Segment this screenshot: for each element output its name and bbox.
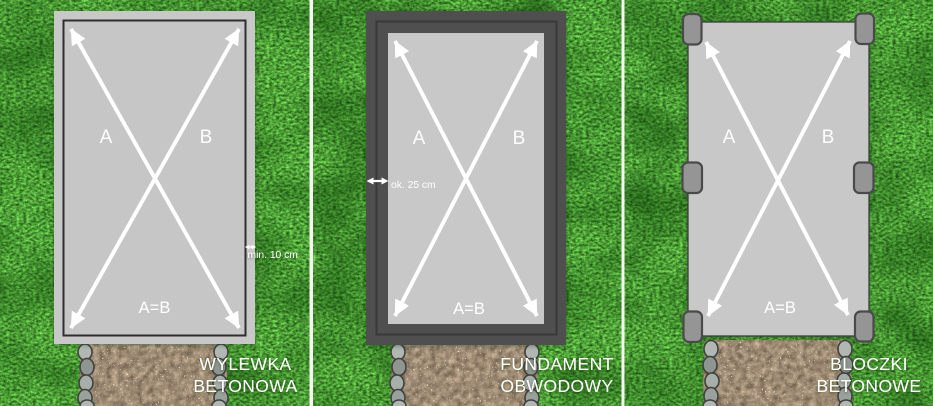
svg-text:A: A: [723, 127, 736, 148]
svg-text:A=B: A=B: [453, 300, 485, 318]
svg-text:A=B: A=B: [764, 299, 796, 317]
svg-text:A: A: [100, 127, 113, 148]
svg-text:BETONOWE: BETONOWE: [817, 376, 922, 396]
svg-text:BLOCZKI: BLOCZKI: [830, 354, 908, 374]
svg-text:B: B: [200, 127, 213, 148]
svg-text:A=B: A=B: [139, 299, 171, 317]
svg-text:FUNDAMENT: FUNDAMENT: [500, 354, 613, 374]
svg-text:A: A: [413, 128, 426, 149]
svg-text:B: B: [513, 128, 526, 149]
svg-text:B: B: [822, 127, 835, 148]
svg-text:min. 10 cm: min. 10 cm: [248, 250, 298, 261]
svg-text:OBWODOWY: OBWODOWY: [500, 376, 613, 396]
svg-text:ok. 25 cm: ok. 25 cm: [391, 180, 436, 191]
svg-text:WYLEWKA: WYLEWKA: [199, 354, 291, 374]
svg-text:BETONOWA: BETONOWA: [193, 376, 297, 396]
